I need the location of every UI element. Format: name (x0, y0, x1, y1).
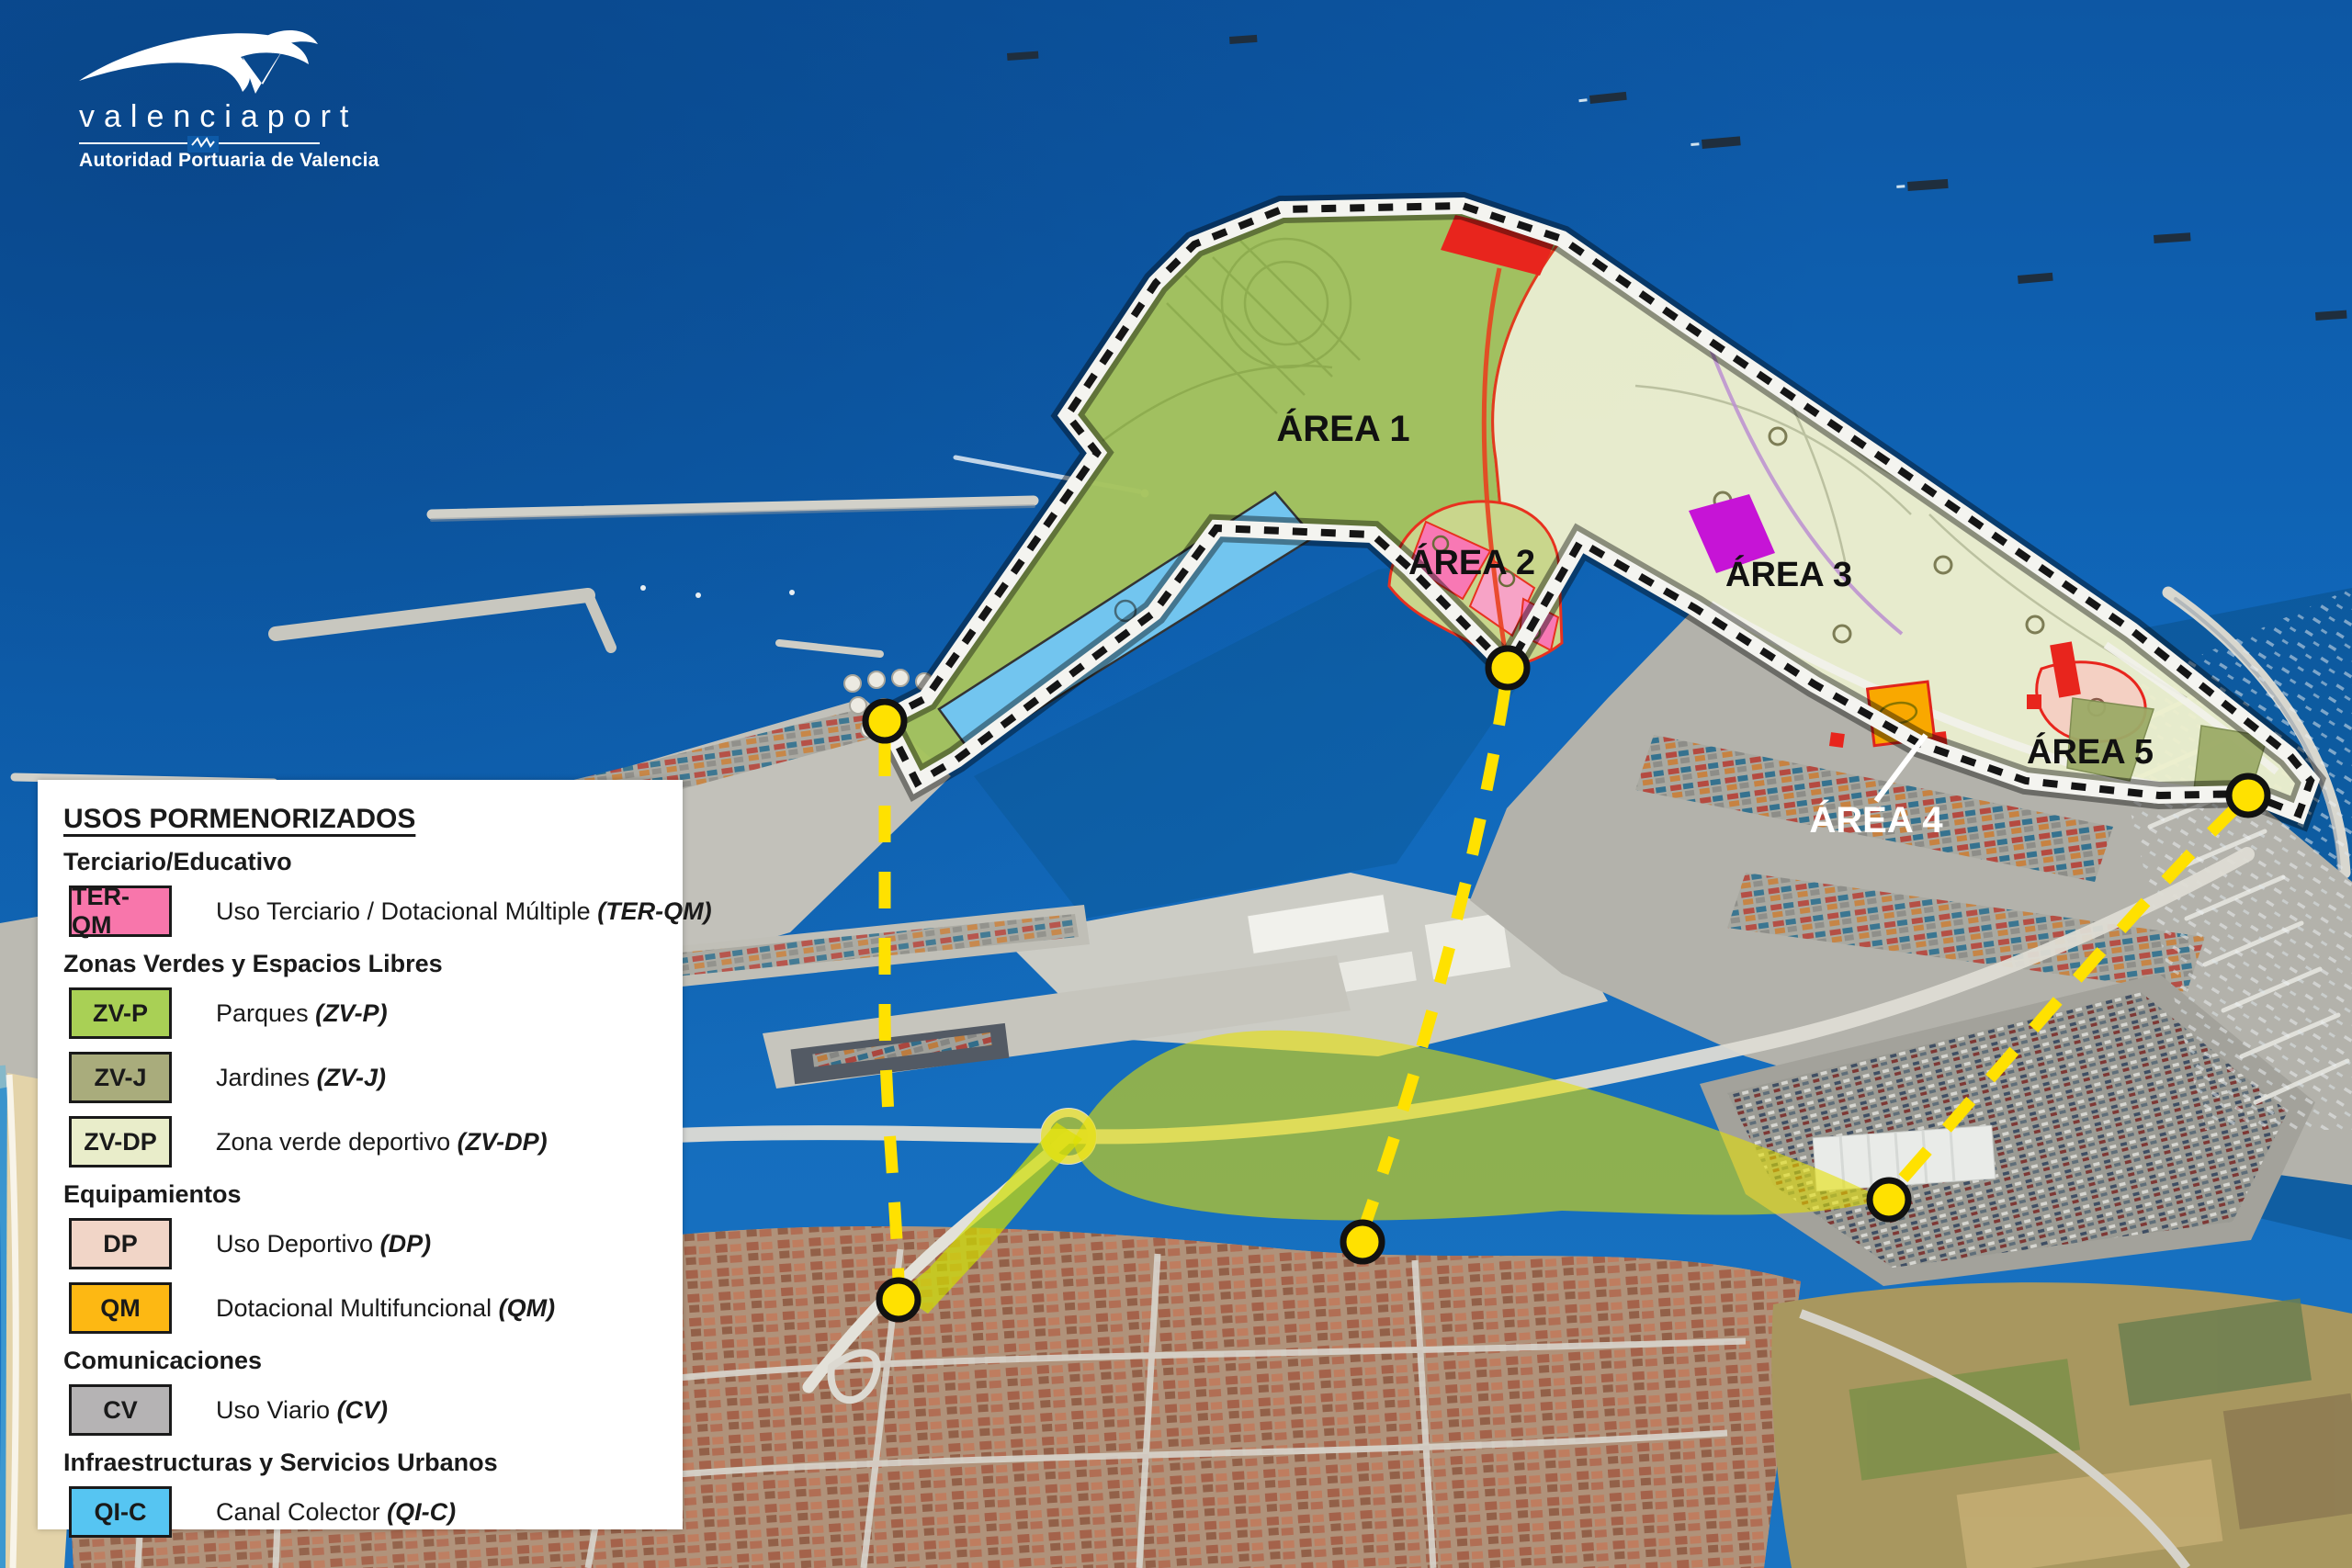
swatch-qi-c: QI-C (69, 1486, 172, 1538)
legend-item-cv: CV Uso Viario (CV) (69, 1384, 655, 1436)
area-label-2: ÁREA 2 (1408, 542, 1535, 582)
swatch-zv-dp: ZV-DP (69, 1116, 172, 1168)
legend-item-qi-c: QI-C Canal Colector (QI-C) (69, 1486, 655, 1538)
swatch-dp: DP (69, 1218, 172, 1269)
logo-divider (79, 142, 320, 144)
area-label-1: ÁREA 1 (1276, 408, 1409, 449)
legend-item-zv-j: ZV-J Jardines (ZV-J) (69, 1052, 655, 1103)
area-label-3: ÁREA 3 (1725, 554, 1852, 594)
valenciaport-swoosh-icon (75, 17, 323, 97)
swatch-ter-qm: TER-QM (69, 886, 172, 937)
legend-section-infraestructuras: Infraestructuras y Servicios Urbanos (63, 1449, 655, 1477)
swatch-zv-j: ZV-J (69, 1052, 172, 1103)
port-plan-map: ÁREA 1 ÁREA 2 ÁREA 3 ÁREA 4 ÁREA 5 valen… (0, 0, 2352, 1568)
valenciaport-logo: valenciaport Autoridad Portuaria de Vale… (39, 17, 388, 172)
logo-mini-swoosh-icon (187, 136, 219, 152)
swatch-zv-p: ZV-P (69, 987, 172, 1039)
legend-item-ter-qm: TER-QM Uso Terciario / Dotacional Múltip… (69, 886, 655, 937)
swatch-qm: QM (69, 1282, 172, 1334)
legend-title: USOS PORMENORIZADOS (63, 804, 655, 835)
legend-item-zv-p: ZV-P Parques (ZV-P) (69, 987, 655, 1039)
legend-section-comunicaciones: Comunicaciones (63, 1347, 655, 1375)
legend-section-zonas-verdes: Zonas Verdes y Espacios Libres (63, 950, 655, 978)
legend-section-terciario: Terciario/Educativo (63, 848, 655, 876)
legend-section-equipamientos: Equipamientos (63, 1180, 655, 1209)
logo-subtitle: Autoridad Portuaria de Valencia (79, 150, 388, 172)
legend-item-qm: QM Dotacional Multifuncional (QM) (69, 1282, 655, 1334)
logo-brand-text: valenciaport (79, 99, 388, 135)
area-label-5: ÁREA 5 (2027, 731, 2154, 772)
legend-item-dp: DP Uso Deportivo (DP) (69, 1218, 655, 1269)
area-label-4: ÁREA 4 (1809, 799, 1943, 840)
legend-item-zv-dp: ZV-DP Zona verde deportivo (ZV-DP) (69, 1116, 655, 1168)
legend-panel: USOS PORMENORIZADOS Terciario/Educativo … (38, 780, 683, 1529)
swatch-cv: CV (69, 1384, 172, 1436)
